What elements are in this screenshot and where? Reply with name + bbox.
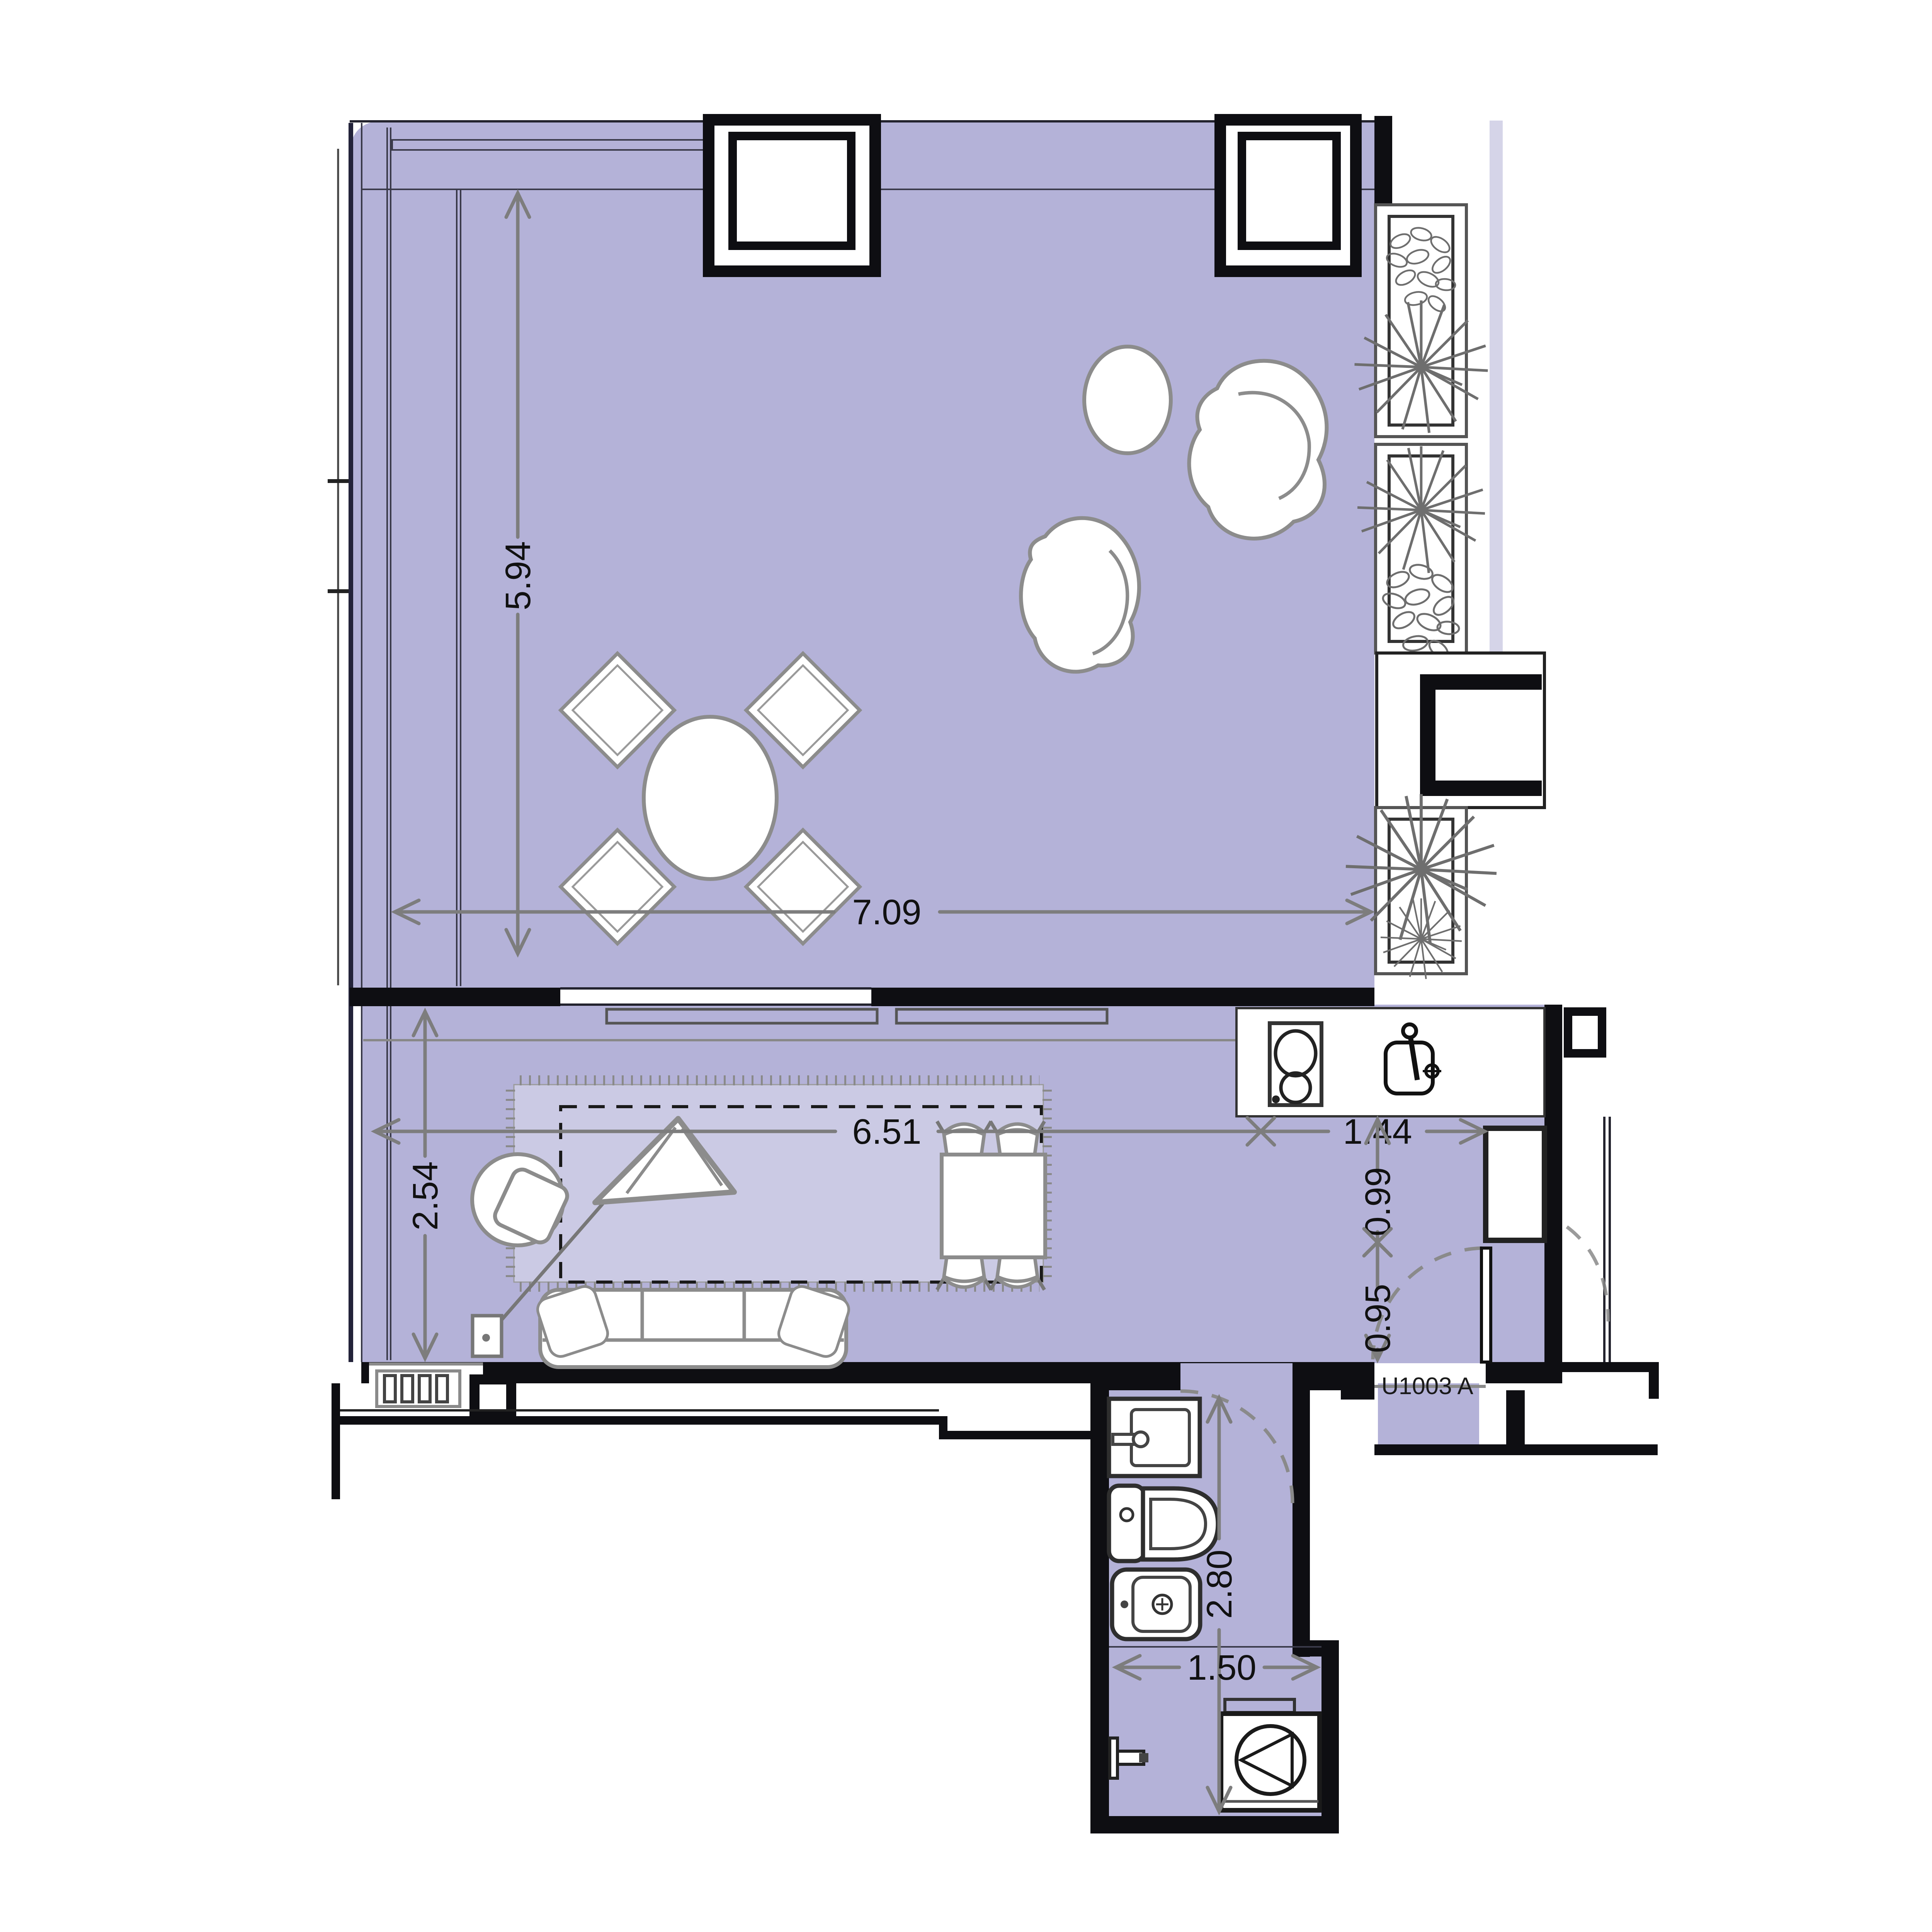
terrace-beanbag-left — [1021, 518, 1139, 672]
floor-plan-page: 5.94 7.09 6.51 1.44 0.99 0.95 — [0, 0, 1932, 1932]
dim-label-terrace-depth: 5.94 — [498, 541, 538, 610]
kitchen-counter — [1236, 1008, 1544, 1116]
dim-label-kitchen-return: 0.99 — [1358, 1167, 1398, 1236]
dim-label-shower-width: 1.50 — [1187, 1648, 1256, 1687]
cooktop-icon — [1270, 1023, 1321, 1105]
floor-plan-drawing: 5.94 7.09 6.51 1.44 0.99 0.95 — [0, 0, 1932, 1932]
dim-label-entry-width: 0.95 — [1358, 1284, 1398, 1353]
dim-label-living-width: 6.51 — [852, 1112, 921, 1151]
entry-cabinet — [1486, 1128, 1544, 1240]
planter-top — [1355, 205, 1488, 437]
shaft-box-right — [1220, 120, 1356, 271]
radiator — [377, 1371, 460, 1406]
shaft-box-left — [709, 120, 875, 271]
dim-label-terrace-width: 7.09 — [852, 893, 921, 932]
neighbor-door-arc — [1567, 1227, 1608, 1321]
property-line — [328, 149, 349, 985]
bathroom-vanity — [1109, 1399, 1200, 1476]
neighbor-wall-strip — [1490, 121, 1503, 654]
duct-niche — [1377, 653, 1544, 808]
dim-label-living-depth: 2.54 — [406, 1161, 445, 1230]
bidet — [1112, 1570, 1200, 1639]
dim-label-bathroom-depth: 2.80 — [1200, 1549, 1239, 1619]
terrace-pouf — [1084, 347, 1171, 453]
unit-label: U1003 A — [1381, 1373, 1474, 1400]
washing-machine-icon — [1221, 1699, 1320, 1810]
sofa — [535, 1284, 852, 1367]
planter-middle — [1357, 444, 1485, 661]
